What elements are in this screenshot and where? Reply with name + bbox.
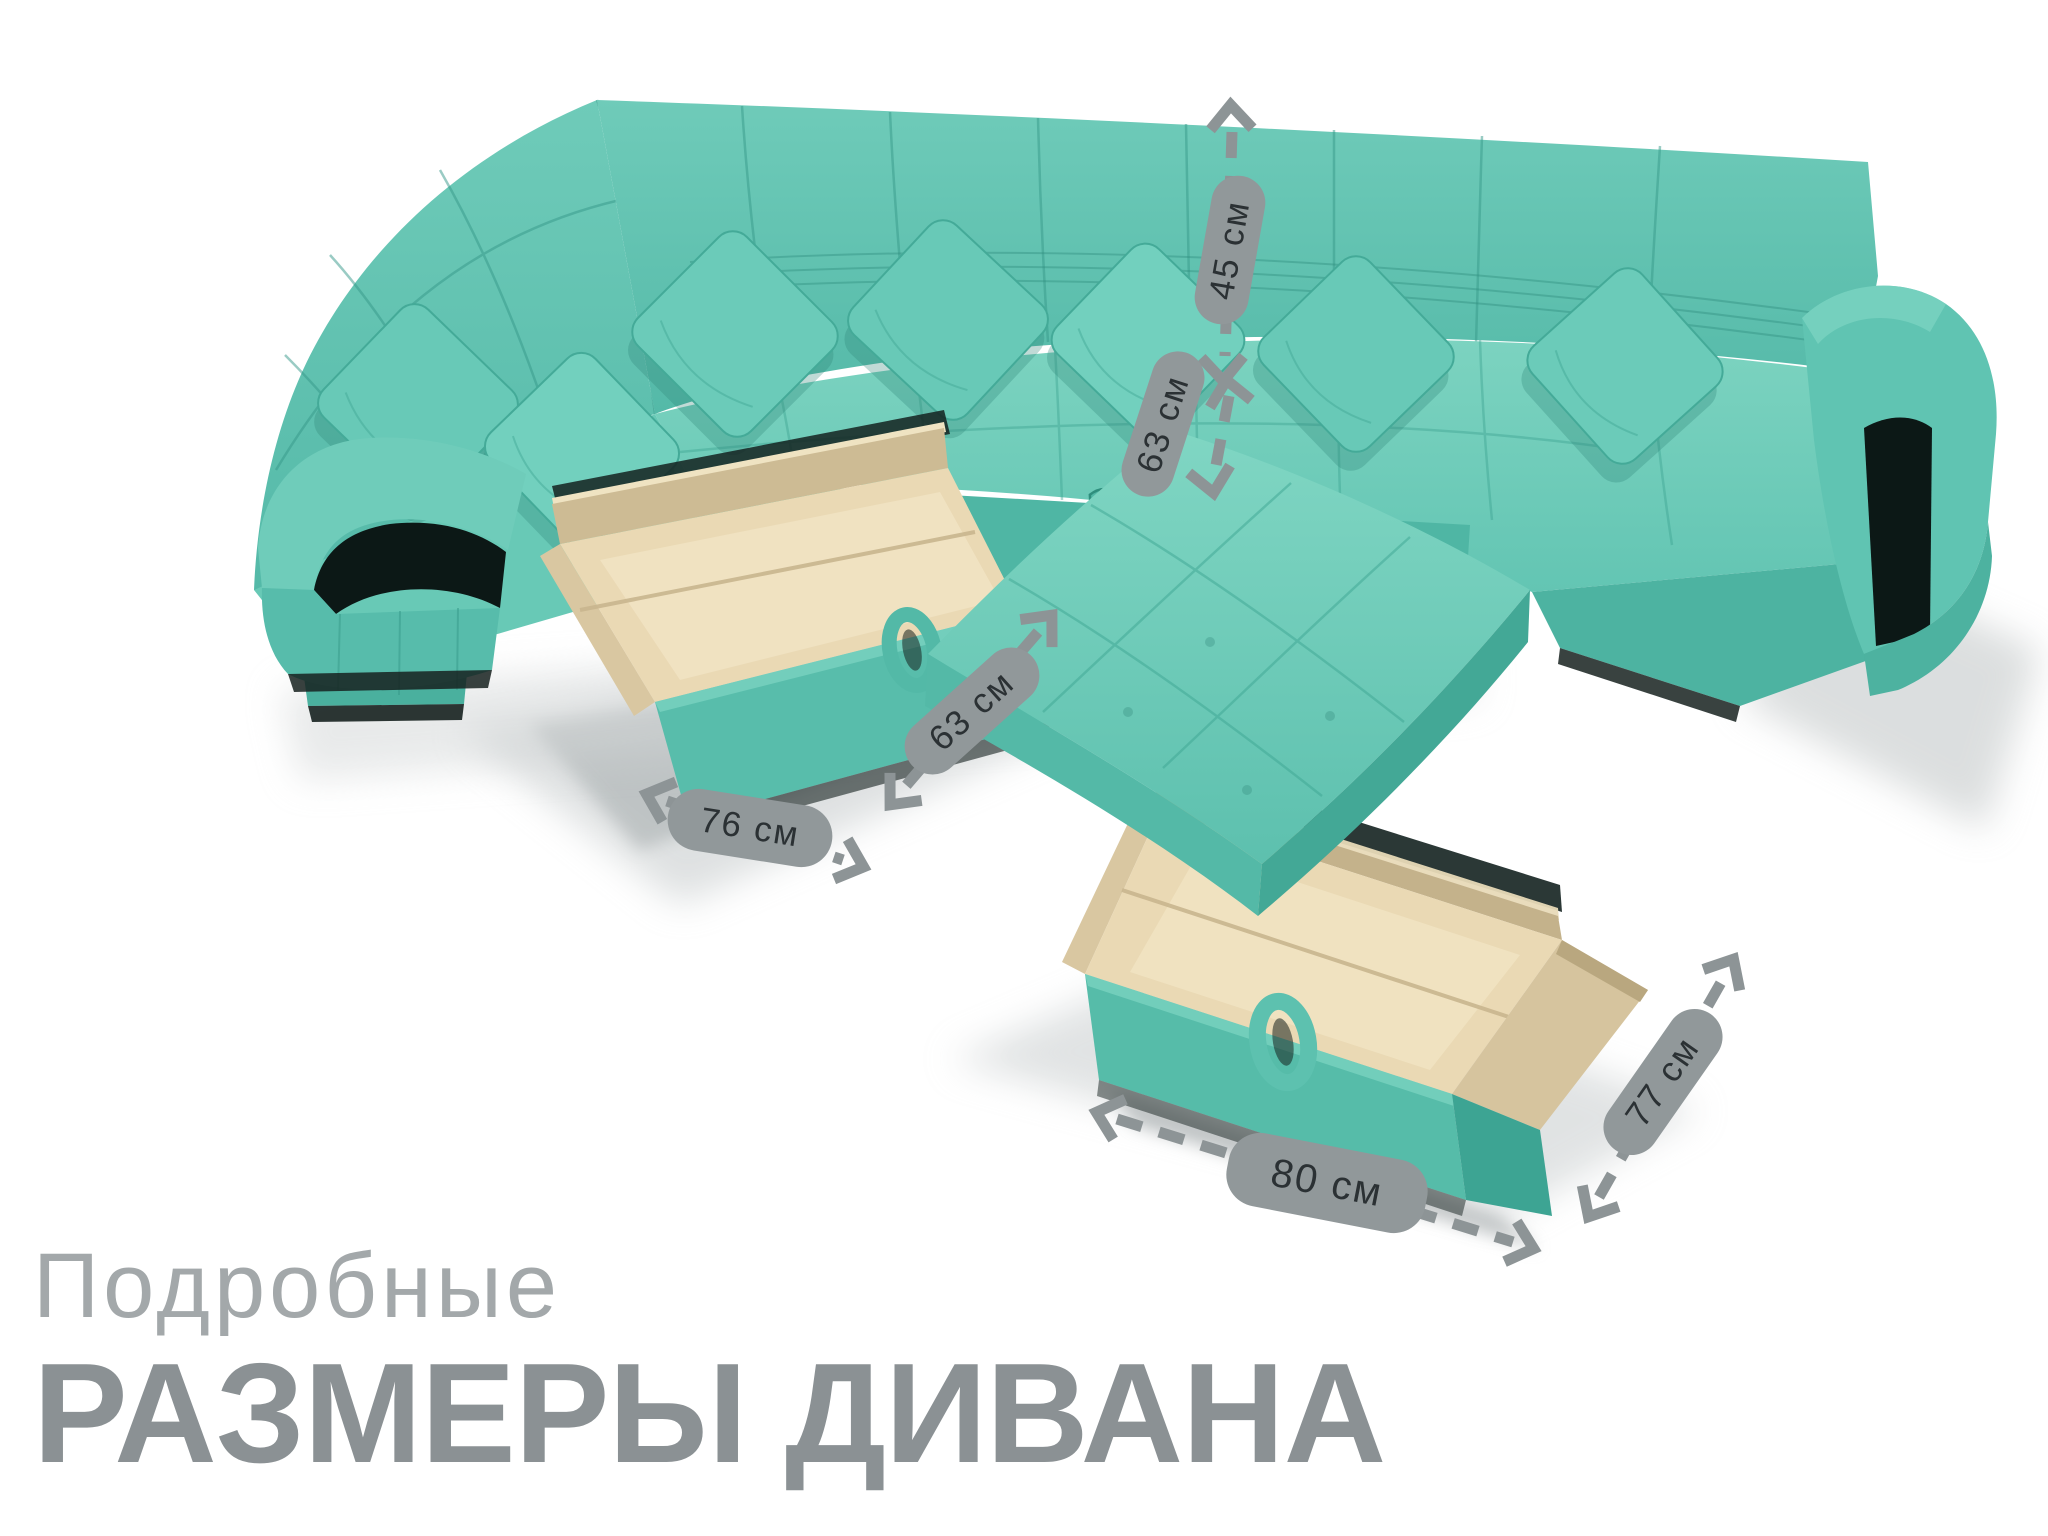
caption-block: Подробные РАЗМЕРЫ ДИВАНА (33, 1238, 1385, 1485)
right-armrest-opening (1864, 418, 1932, 647)
subtitle-text: Подробные (33, 1238, 1385, 1335)
right-drawer-handle (1251, 997, 1314, 1086)
product-dimensions-infographic: 45 см 63 см 63 см 76 см 80 см 77 см Подр… (0, 0, 2048, 1536)
left-armrest (258, 437, 526, 695)
page-title: РАЗМЕРЫ ДИВАНА (33, 1343, 1385, 1485)
